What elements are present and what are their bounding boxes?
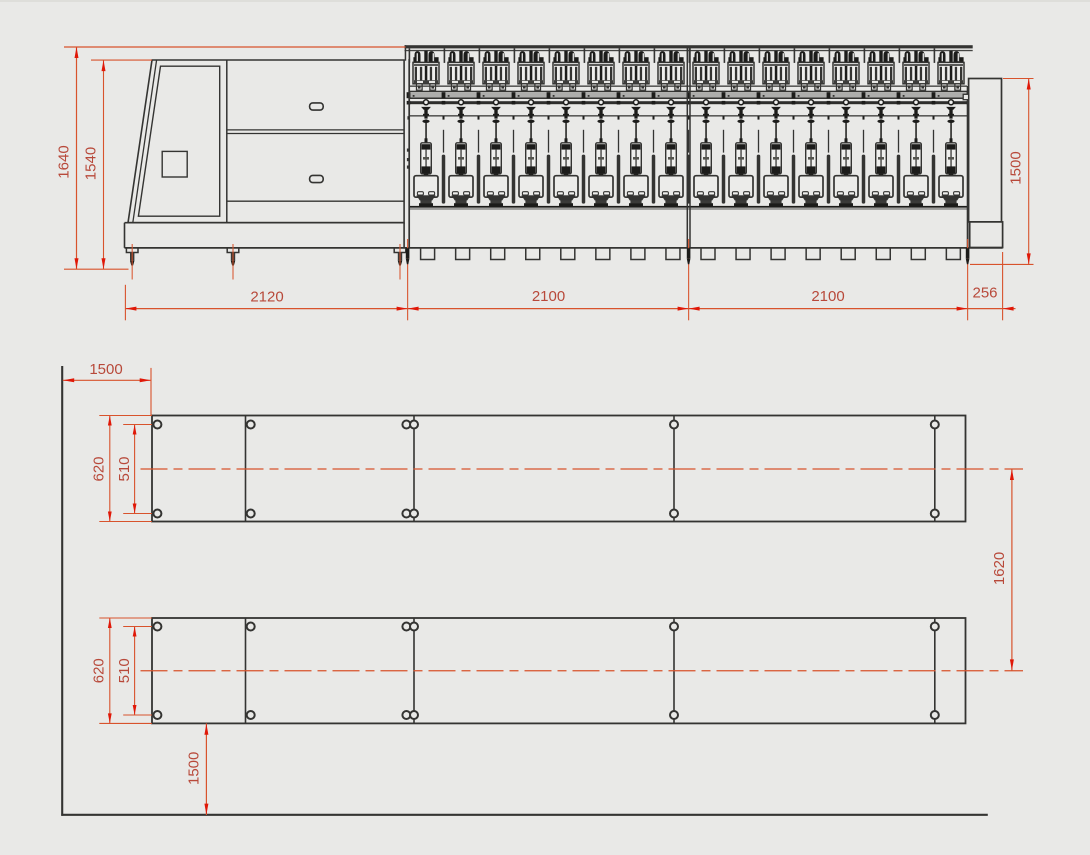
svg-text:256: 256 [972,285,997,302]
svg-text:510: 510 [116,658,133,683]
svg-text:1500: 1500 [186,752,203,785]
svg-text:1640: 1640 [56,145,73,178]
svg-text:2120: 2120 [250,289,283,306]
svg-text:2100: 2100 [532,288,565,305]
svg-text:620: 620 [91,456,108,481]
svg-text:510: 510 [116,456,133,481]
svg-text:1500: 1500 [89,361,122,378]
svg-text:2100: 2100 [811,288,844,305]
svg-text:1500: 1500 [1008,151,1025,184]
svg-text:1620: 1620 [991,552,1008,585]
svg-text:620: 620 [91,658,108,683]
svg-text:1540: 1540 [82,147,99,180]
